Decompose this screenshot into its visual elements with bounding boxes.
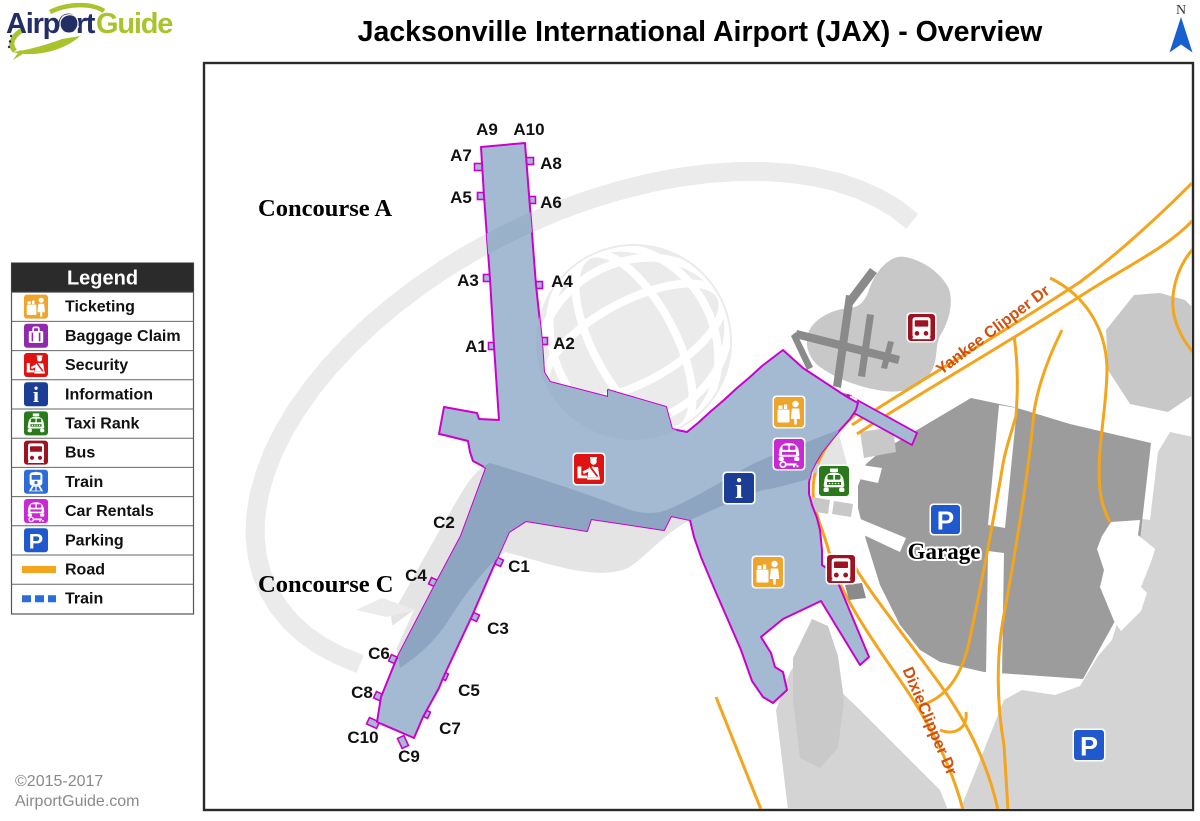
- svg-text:A7: A7: [450, 146, 472, 165]
- svg-text:N: N: [1176, 3, 1186, 18]
- svg-text:Train: Train: [65, 591, 103, 608]
- svg-text:©2015-2017: ©2015-2017: [15, 773, 103, 790]
- svg-text:C2: C2: [433, 513, 455, 532]
- svg-text:P: P: [29, 529, 43, 554]
- svg-text:Concourse A: Concourse A: [258, 195, 392, 222]
- svg-text:A4: A4: [551, 272, 573, 291]
- svg-text:Security: Security: [65, 357, 128, 374]
- svg-text:Car Rentals: Car Rentals: [65, 503, 154, 520]
- svg-text:Taxi Rank: Taxi Rank: [65, 416, 140, 433]
- svg-text:Ticketing: Ticketing: [65, 299, 135, 316]
- svg-text:P: P: [937, 506, 954, 536]
- svg-text:C7: C7: [439, 719, 461, 738]
- svg-text:C9: C9: [398, 747, 420, 766]
- svg-text:C10: C10: [347, 728, 378, 747]
- svg-text:A6: A6: [540, 193, 562, 212]
- svg-text:Baggage Claim: Baggage Claim: [65, 328, 181, 345]
- svg-text:C8: C8: [351, 683, 373, 702]
- svg-text:i: i: [33, 382, 39, 407]
- svg-text:Train: Train: [65, 474, 103, 491]
- svg-text:Parking: Parking: [65, 532, 124, 549]
- svg-text:Road: Road: [65, 562, 105, 579]
- svg-text:Guide: Guide: [96, 8, 173, 40]
- svg-text:A2: A2: [553, 334, 575, 353]
- svg-text:C4: C4: [405, 566, 427, 585]
- svg-text:C6: C6: [368, 644, 390, 663]
- svg-text:Jacksonville International Air: Jacksonville International Airport (JAX)…: [358, 16, 1044, 48]
- svg-text:Garage: Garage: [908, 539, 981, 564]
- svg-text:A1: A1: [465, 337, 487, 356]
- svg-text:P: P: [1080, 732, 1098, 762]
- svg-text:Bus: Bus: [65, 445, 95, 462]
- svg-text:C5: C5: [458, 681, 480, 700]
- svg-text:Information: Information: [65, 386, 153, 403]
- svg-text:A3: A3: [457, 271, 479, 290]
- svg-text:Concourse C: Concourse C: [258, 571, 393, 598]
- svg-text:i: i: [735, 474, 743, 505]
- svg-text:A8: A8: [540, 154, 562, 173]
- svg-text:Legend: Legend: [67, 268, 138, 290]
- svg-text:A10: A10: [513, 120, 544, 139]
- svg-text:AirportGuide.com: AirportGuide.com: [15, 793, 140, 810]
- svg-text:Airport: Airport: [6, 8, 96, 40]
- svg-text:A5: A5: [450, 188, 472, 207]
- svg-text:C3: C3: [487, 619, 509, 638]
- svg-text:C1: C1: [508, 557, 530, 576]
- svg-text:A9: A9: [476, 120, 498, 139]
